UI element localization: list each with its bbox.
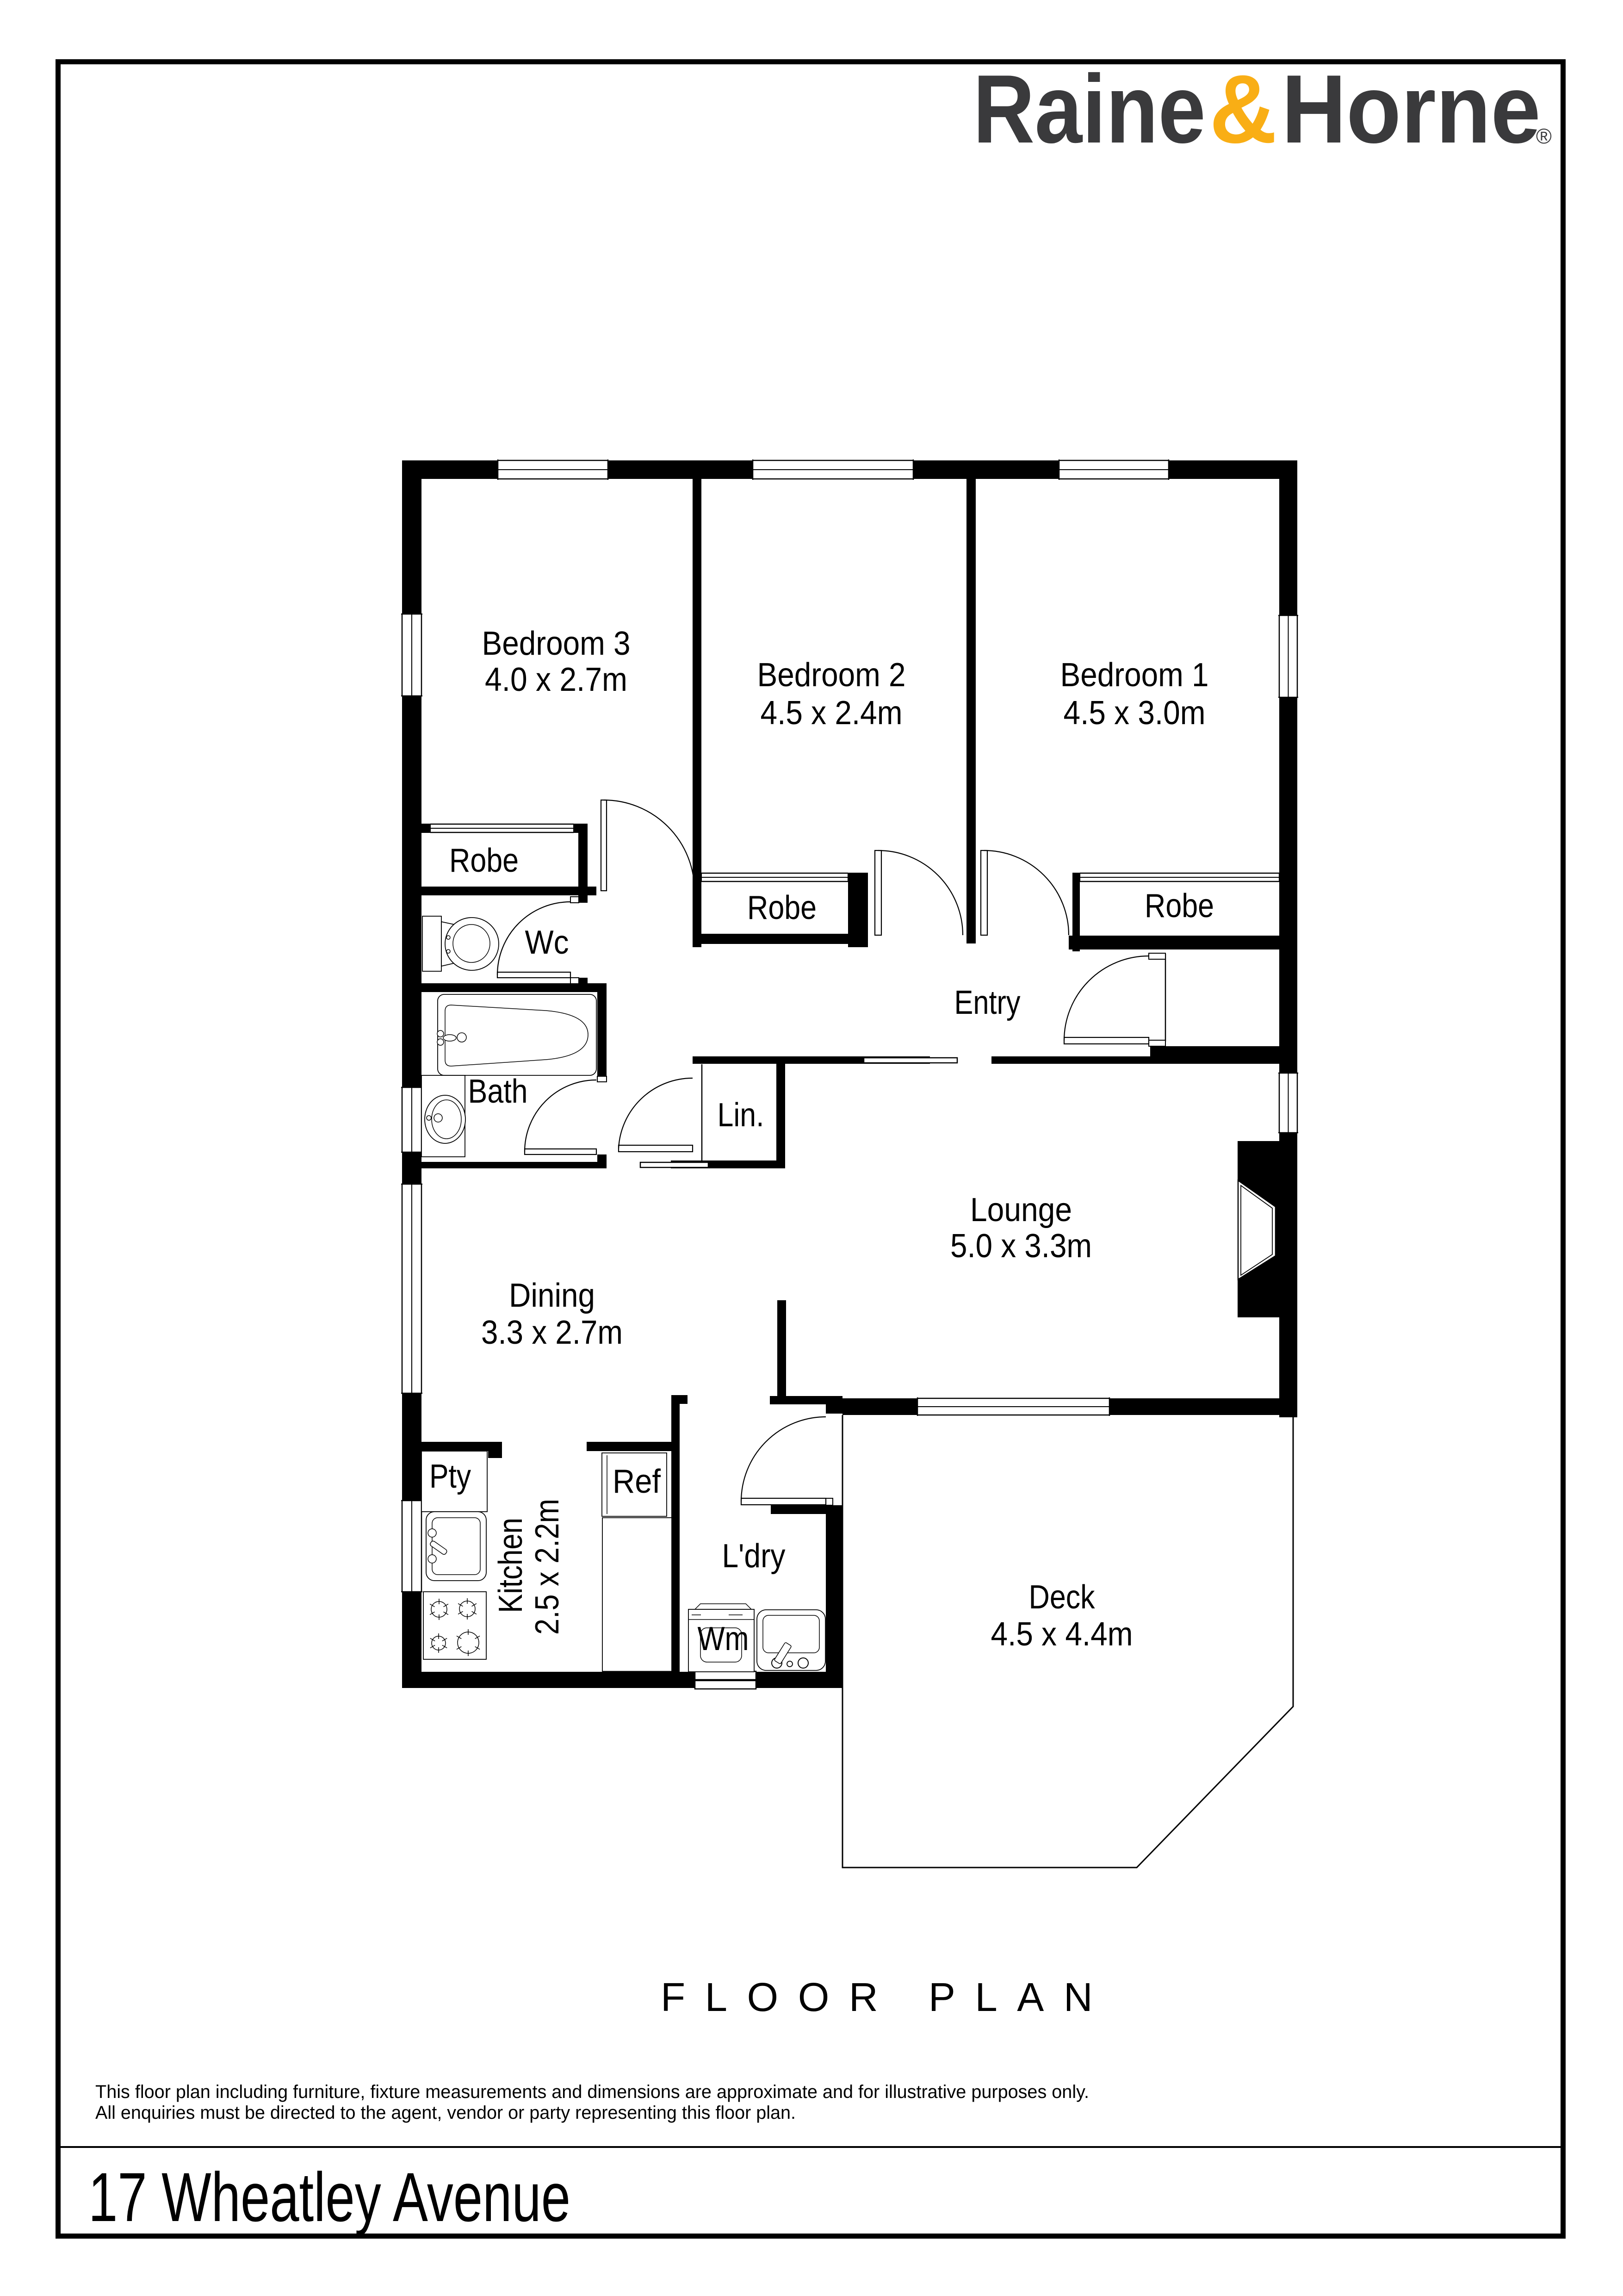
svg-text:2.5 x 2.2m: 2.5 x 2.2m	[529, 1499, 566, 1635]
svg-text:Robe: Robe	[747, 889, 817, 926]
svg-text:Robe: Robe	[1145, 887, 1214, 925]
svg-text:®: ®	[1536, 124, 1552, 148]
svg-text:Kitchen: Kitchen	[492, 1518, 529, 1613]
svg-text:4.5 x 3.0m: 4.5 x 3.0m	[1064, 695, 1206, 732]
svg-text:Wm: Wm	[698, 1620, 749, 1657]
svg-text:Lounge: Lounge	[970, 1191, 1072, 1229]
svg-text:Bedroom 3: Bedroom 3	[482, 625, 631, 662]
svg-text:3.3 x 2.7m: 3.3 x 2.7m	[481, 1314, 623, 1351]
svg-text:Deck: Deck	[1029, 1579, 1096, 1616]
svg-text:4.5 x 2.4m: 4.5 x 2.4m	[761, 695, 903, 732]
svg-text:Bedroom 2: Bedroom 2	[757, 657, 906, 694]
svg-text:Bath: Bath	[468, 1073, 528, 1110]
svg-text:L'dry: L'dry	[722, 1538, 786, 1575]
svg-text:Ref: Ref	[613, 1463, 661, 1500]
svg-text:Wc: Wc	[525, 924, 569, 961]
svg-text:Lin.: Lin.	[718, 1097, 764, 1134]
svg-text:4.5 x 4.4m: 4.5 x 4.4m	[991, 1616, 1133, 1653]
svg-text:Raine: Raine	[973, 55, 1206, 163]
svg-text:Horne: Horne	[1282, 55, 1541, 163]
svg-text:Dining: Dining	[509, 1277, 595, 1314]
svg-text:Pty: Pty	[429, 1458, 471, 1495]
svg-text:Robe: Robe	[449, 842, 519, 879]
svg-text:Entry: Entry	[954, 984, 1021, 1021]
svg-text:5.0 x 3.3m: 5.0 x 3.3m	[950, 1228, 1092, 1265]
svg-text:4.0 x 2.7m: 4.0 x 2.7m	[485, 661, 627, 698]
svg-text:&: &	[1209, 55, 1277, 163]
svg-text:17 Wheatley Avenue: 17 Wheatley Avenue	[88, 2158, 570, 2236]
svg-text:FLOOR PLAN: FLOOR PLAN	[661, 1975, 1112, 2020]
svg-text:Bedroom 1: Bedroom 1	[1060, 657, 1209, 694]
svg-text:This floor plan including furn: This floor plan including furniture, fix…	[95, 2082, 1089, 2102]
svg-text:All enquiries must be directed: All enquiries must be directed to the ag…	[95, 2103, 796, 2123]
